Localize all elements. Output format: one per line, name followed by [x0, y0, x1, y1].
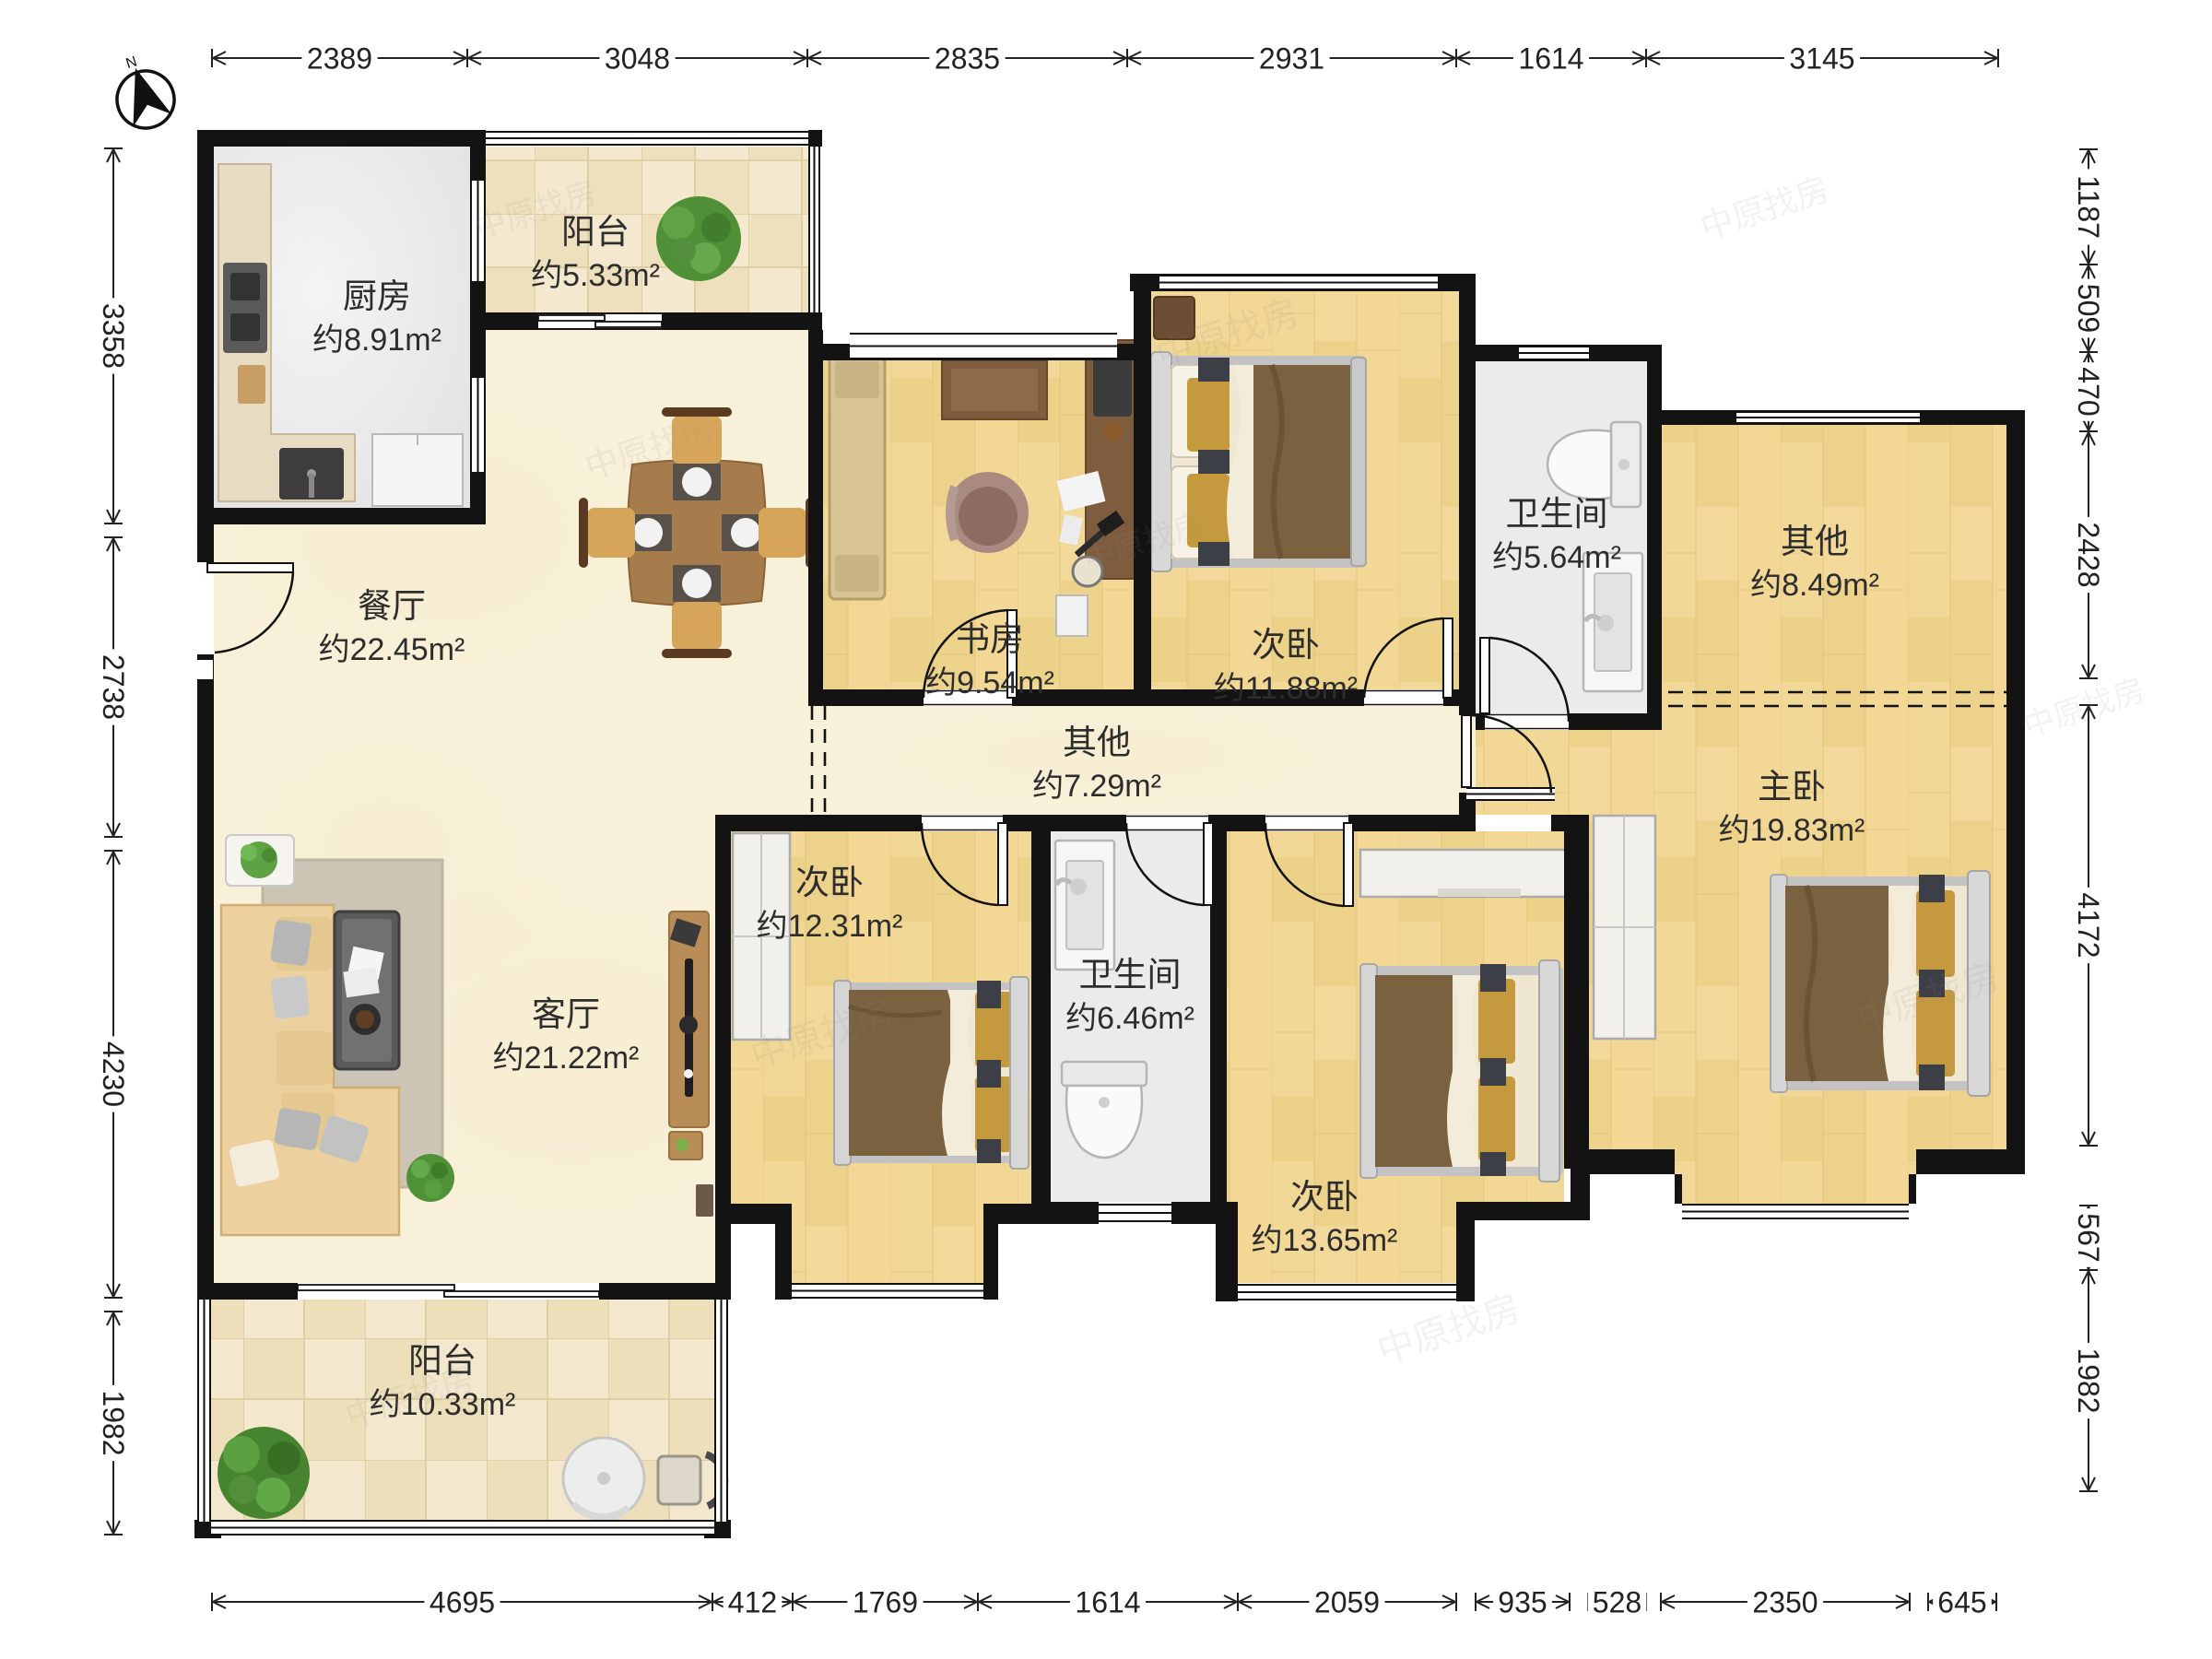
svg-text:509: 509 — [2072, 284, 2105, 333]
svg-text:约19.83m²: 约19.83m² — [1719, 813, 1865, 848]
svg-text:470: 470 — [2072, 367, 2105, 416]
svg-text:1982: 1982 — [97, 1390, 130, 1455]
svg-text:1982: 1982 — [2072, 1347, 2105, 1413]
svg-text:约13.65m²: 约13.65m² — [1252, 1223, 1398, 1258]
svg-text:书房: 书房 — [956, 620, 1024, 658]
svg-text:约6.46m²: 约6.46m² — [1065, 1001, 1194, 1036]
svg-text:主卧: 主卧 — [1758, 768, 1826, 806]
svg-text:阳台: 阳台 — [561, 213, 629, 251]
svg-text:次卧: 次卧 — [1290, 1178, 1359, 1216]
svg-text:约8.91m²: 约8.91m² — [312, 323, 441, 358]
svg-text:约8.49m²: 约8.49m² — [1750, 568, 1879, 603]
svg-text:客厅: 客厅 — [532, 995, 600, 1033]
svg-text:卫生间: 卫生间 — [1506, 495, 1608, 533]
svg-text:次卧: 次卧 — [795, 864, 864, 901]
svg-text:1187: 1187 — [2072, 175, 2105, 239]
svg-text:412: 412 — [728, 1586, 777, 1619]
svg-text:1614: 1614 — [1518, 42, 1583, 76]
svg-text:2059: 2059 — [1314, 1586, 1380, 1619]
svg-text:3145: 3145 — [1789, 42, 1854, 76]
svg-text:约11.88m²: 约11.88m² — [1214, 671, 1358, 706]
svg-text:1769: 1769 — [853, 1586, 918, 1619]
svg-text:2389: 2389 — [307, 42, 372, 76]
svg-text:528: 528 — [1593, 1586, 1641, 1619]
svg-text:2428: 2428 — [2072, 522, 2105, 587]
svg-text:4695: 4695 — [429, 1586, 495, 1619]
svg-text:餐厅: 餐厅 — [358, 587, 426, 625]
svg-text:其他: 其他 — [1063, 724, 1131, 761]
svg-text:约5.33m²: 约5.33m² — [531, 258, 660, 293]
svg-text:4172: 4172 — [2072, 892, 2105, 958]
svg-text:2835: 2835 — [935, 42, 1000, 76]
svg-text:其他: 其他 — [1781, 523, 1849, 560]
svg-text:约12.31m²: 约12.31m² — [757, 909, 903, 944]
svg-text:2931: 2931 — [1259, 42, 1324, 76]
svg-text:567: 567 — [2072, 1213, 2105, 1262]
svg-text:4230: 4230 — [97, 1041, 130, 1107]
svg-text:645: 645 — [1937, 1586, 1986, 1619]
svg-text:约7.29m²: 约7.29m² — [1032, 769, 1161, 804]
svg-text:约5.64m²: 约5.64m² — [1492, 540, 1621, 575]
svg-text:3358: 3358 — [97, 303, 130, 369]
svg-text:次卧: 次卧 — [1252, 626, 1320, 664]
svg-text:约22.45m²: 约22.45m² — [319, 632, 465, 667]
svg-text:2738: 2738 — [97, 654, 130, 720]
svg-text:1614: 1614 — [1075, 1586, 1140, 1619]
svg-text:约21.22m²: 约21.22m² — [493, 1041, 640, 1076]
svg-text:厨房: 厨房 — [343, 277, 411, 315]
svg-text:卫生间: 卫生间 — [1079, 956, 1182, 994]
svg-text:935: 935 — [1498, 1586, 1547, 1619]
svg-text:约9.54m²: 约9.54m² — [925, 665, 1054, 700]
svg-text:2350: 2350 — [1752, 1586, 1818, 1619]
svg-text:3048: 3048 — [605, 42, 670, 76]
